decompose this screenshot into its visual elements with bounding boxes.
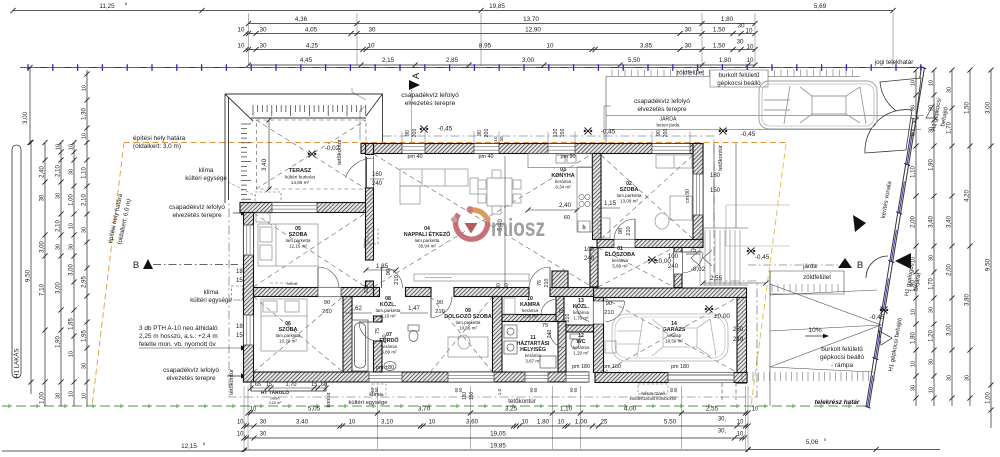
svg-text:120: 120: [553, 129, 559, 138]
svg-text:30: 30: [965, 375, 971, 381]
svg-text:39,94 m²: 39,94 m²: [418, 244, 436, 249]
svg-text:30: 30: [911, 385, 917, 391]
svg-text:lam.parketta: lam.parketta: [415, 238, 440, 243]
svg-text:3,00: 3,00: [947, 324, 953, 336]
svg-text:(oldalkert: 3,0 m): (oldalkert: 3,0 m): [133, 143, 181, 150]
svg-text:kerámia: kerámia: [555, 179, 572, 184]
svg-text:3,40: 3,40: [947, 216, 953, 228]
svg-text:kerámia: kerámia: [381, 344, 398, 349]
svg-text:2,55: 2,55: [710, 275, 723, 282]
svg-text:30: 30: [929, 307, 935, 313]
svg-text:10: 10: [82, 85, 88, 91]
svg-text:TERASZ: TERASZ: [289, 168, 312, 174]
svg-text:elvezetés terepre: elvezetés terepre: [405, 100, 456, 107]
svg-text:30: 30: [56, 393, 62, 399]
svg-text:76: 76: [559, 308, 565, 314]
svg-text:DOLGOZÓ SZOBA: DOLGOZÓ SZOBA: [444, 312, 492, 320]
svg-text:6,89 m²: 6,89 m²: [381, 350, 397, 355]
svg-text:WC: WC: [577, 339, 586, 345]
svg-text:1,90: 1,90: [929, 159, 935, 171]
svg-text:11,25: 11,25: [99, 3, 115, 10]
svg-text:240: 240: [547, 330, 553, 339]
svg-text:15,: 15,: [311, 382, 319, 388]
svg-text:2,40: 2,40: [559, 202, 572, 209]
svg-text:-0,02: -0,02: [691, 266, 706, 273]
svg-text:19,85: 19,85: [490, 443, 506, 450]
svg-text:10: 10: [746, 44, 754, 51]
svg-text:NAPPALI ÉTKEZŐ: NAPPALI ÉTKEZŐ: [404, 230, 451, 238]
svg-text:B: B: [857, 260, 863, 271]
svg-text:1,70: 1,70: [286, 382, 297, 388]
svg-text:1,80: 1,80: [537, 419, 550, 426]
svg-text:18,59 m²: 18,59 m²: [665, 339, 683, 344]
svg-text:2,55: 2,55: [706, 406, 719, 413]
svg-text:lam.parketta: lam.parketta: [276, 333, 301, 338]
svg-text:2,10: 2,10: [56, 165, 62, 177]
svg-text:10: 10: [911, 257, 917, 263]
svg-text:A: A: [411, 72, 422, 79]
svg-text:-0,02: -0,02: [325, 145, 340, 152]
svg-text:76: 76: [537, 280, 543, 286]
svg-text:1,70 m²: 1,70 m²: [573, 316, 589, 321]
svg-text:30: 30: [40, 194, 46, 201]
svg-text:10%: 10%: [808, 327, 822, 334]
svg-text:10: 10: [911, 309, 917, 315]
svg-text:5,89 m²: 5,89 m²: [612, 264, 628, 269]
svg-text:250: 250: [733, 326, 744, 333]
svg-text:150: 150: [560, 129, 566, 138]
svg-text:simílap: simílap: [667, 333, 682, 338]
svg-text:KÖZL.: KÖZL.: [380, 301, 397, 308]
svg-text:tetőkontúr: tetőkontúr: [229, 369, 235, 395]
svg-text:HÁZTARTÁSI: HÁZTARTÁSI: [517, 340, 550, 347]
svg-text:15: 15: [266, 382, 272, 388]
svg-text:lam.parketta: lam.parketta: [456, 320, 481, 325]
svg-text:kontúr: kontúr: [326, 392, 332, 407]
svg-text:30: 30: [499, 136, 504, 142]
svg-text:3,25: 3,25: [505, 406, 518, 413]
svg-text:240: 240: [372, 181, 383, 187]
svg-text:zöldfelület: zöldfelület: [803, 274, 831, 281]
svg-text:-0,45: -0,45: [755, 254, 770, 261]
svg-text:30: 30: [911, 105, 917, 111]
svg-text:90: 90: [405, 130, 411, 136]
svg-text:1,85: 1,85: [69, 318, 75, 330]
svg-text:10: 10: [367, 43, 375, 50]
svg-text:90: 90: [606, 301, 612, 307]
svg-text:cm 90: cm 90: [685, 189, 691, 203]
svg-text:kerámia: kerámia: [612, 258, 629, 263]
svg-text:10,: 10,: [237, 432, 246, 438]
svg-text:klíma: klíma: [199, 167, 214, 174]
svg-text:30: 30: [929, 105, 935, 111]
svg-text:180: 180: [710, 173, 721, 179]
svg-text:kerámia: kerámia: [525, 353, 542, 358]
svg-text:3,87 m²: 3,87 m²: [525, 358, 541, 363]
svg-text:75: 75: [542, 323, 548, 329]
svg-text:elvezetés terepre: elvezetés terepre: [172, 212, 221, 219]
svg-text:klíma: klíma: [369, 392, 383, 398]
svg-text:30: 30: [684, 43, 692, 50]
svg-text:240: 240: [584, 256, 595, 262]
svg-text:4,20: 4,20: [965, 190, 971, 202]
svg-text:1,10: 1,10: [82, 167, 88, 179]
svg-text:8,34 m²: 8,34 m²: [555, 185, 571, 190]
svg-text:3,40: 3,40: [296, 419, 309, 426]
svg-text:tetőkontúr: tetőkontúr: [508, 398, 536, 405]
svg-text:9,50: 9,50: [25, 269, 32, 282]
svg-text:10: 10: [911, 80, 917, 86]
svg-text:30: 30: [260, 432, 267, 438]
svg-text:3,40: 3,40: [929, 216, 935, 228]
svg-text:burkolt felületű: burkolt felületű: [719, 72, 760, 79]
svg-text:75: 75: [690, 248, 697, 254]
svg-text:4,36: 4,36: [295, 16, 308, 23]
svg-text:9,50: 9,50: [985, 258, 992, 271]
svg-text:lam.parketta: lam.parketta: [376, 308, 401, 313]
svg-text:30: 30: [947, 87, 953, 93]
svg-text:kültéri burkolat: kültéri burkolat: [285, 174, 316, 179]
svg-text:zöldfelület: zöldfelület: [676, 70, 704, 77]
svg-text:10: 10: [493, 136, 498, 142]
svg-text:telekrész határ: telekrész határ: [815, 399, 860, 406]
svg-text:±0,00: ±0,00: [714, 313, 730, 320]
svg-text:12,15 m²: 12,15 m²: [289, 244, 307, 249]
svg-text:burkolt felületű: burkolt felületű: [821, 346, 863, 353]
svg-text:30: 30: [929, 127, 935, 133]
svg-text:10: 10: [56, 144, 62, 150]
svg-text:19,05: 19,05: [490, 431, 506, 438]
svg-text:5,50: 5,50: [628, 57, 641, 64]
svg-text:1,80: 1,80: [911, 280, 917, 292]
svg-text:210: 210: [565, 314, 571, 323]
svg-text:h: h: [583, 225, 586, 231]
svg-text:30: 30: [56, 193, 62, 199]
svg-text:1,35 m²: 1,35 m²: [522, 314, 538, 319]
svg-text:3 db PTH A-10 neo áthidaló: 3 db PTH A-10 neo áthidaló: [139, 325, 218, 332]
svg-text:3,60: 3,60: [466, 419, 479, 426]
svg-text:200: 200: [412, 129, 418, 138]
svg-text:10: 10: [82, 133, 88, 139]
svg-text:KONYHA: KONYHA: [551, 173, 574, 179]
svg-text:160: 160: [372, 172, 383, 178]
svg-text:10: 10: [929, 80, 935, 86]
svg-text:90: 90: [656, 130, 662, 136]
svg-text:járda: járda: [802, 263, 817, 270]
svg-text:3,10: 3,10: [381, 419, 394, 426]
svg-text:10: 10: [69, 223, 75, 229]
svg-text:1,50: 1,50: [713, 43, 726, 50]
svg-text:SZOBA: SZOBA: [279, 327, 298, 333]
svg-text:30: 30: [947, 375, 953, 381]
svg-text:1,30: 1,30: [82, 108, 88, 120]
svg-text:30: 30: [69, 244, 75, 250]
svg-text:10: 10: [82, 393, 88, 399]
svg-text:-0,45: -0,45: [870, 314, 885, 321]
svg-text:10,: 10,: [237, 420, 246, 426]
svg-text:kültéri egysége: kültéri egysége: [190, 297, 232, 304]
svg-text:210: 210: [626, 226, 632, 235]
svg-text:1,00: 1,00: [40, 392, 46, 404]
svg-text:10: 10: [745, 28, 753, 35]
svg-text:60: 60: [533, 387, 538, 392]
svg-text:2,15: 2,15: [382, 57, 395, 64]
svg-text:-0,45: -0,45: [601, 129, 616, 136]
svg-text:1,62: 1,62: [350, 306, 362, 312]
svg-text:98: 98: [618, 228, 624, 234]
svg-text:pm 180: pm 180: [671, 364, 689, 370]
svg-text:elvezetés terepre: elvezetés terepre: [637, 106, 686, 113]
svg-text:60: 60: [673, 387, 678, 392]
svg-text:1,70: 1,70: [929, 278, 935, 290]
svg-text:210: 210: [435, 309, 445, 315]
svg-text:kültéri egysége: kültéri egysége: [349, 400, 388, 406]
svg-text:2,00: 2,00: [947, 264, 953, 276]
svg-text:30: 30: [929, 255, 935, 261]
svg-text:10: 10: [752, 407, 759, 413]
svg-text:30: 30: [82, 227, 88, 233]
svg-text:240: 240: [382, 334, 388, 343]
svg-text:3,00: 3,00: [522, 57, 535, 64]
svg-text:2,10: 2,10: [56, 220, 62, 232]
svg-text:klíma: klíma: [287, 281, 297, 286]
svg-text:kerámia: kerámia: [573, 345, 590, 350]
svg-text:10: 10: [69, 351, 75, 357]
svg-text:30: 30: [260, 420, 267, 426]
svg-text:60: 60: [911, 130, 917, 136]
svg-text:12,90: 12,90: [525, 27, 541, 34]
svg-text:10: 10: [250, 407, 257, 413]
svg-text:2,40: 2,40: [40, 166, 46, 178]
svg-text:1,15: 1,15: [604, 200, 617, 207]
svg-text:65: 65: [255, 382, 261, 388]
svg-text:10,86 m²: 10,86 m²: [459, 326, 477, 331]
svg-text:1,0: 1,0: [497, 388, 502, 395]
svg-text:elvezetés terepre: elvezetés terepre: [166, 375, 215, 382]
svg-text:10: 10: [522, 420, 529, 426]
svg-text:kerámia: kerámia: [522, 308, 539, 313]
svg-text:1,10: 1,10: [911, 166, 917, 178]
svg-text:klíma: klíma: [362, 237, 367, 247]
svg-text:4,05: 4,05: [305, 27, 318, 34]
svg-text:KAMRA: KAMRA: [520, 302, 540, 308]
svg-text:-0,45: -0,45: [438, 126, 453, 133]
svg-text:KÖZL.: KÖZL.: [573, 303, 590, 310]
svg-text:2,85: 2,85: [446, 57, 459, 64]
svg-text:1,00: 1,00: [69, 194, 75, 206]
svg-text:1,50: 1,50: [965, 102, 971, 114]
svg-text:3,16 m²: 3,16 m²: [380, 314, 396, 319]
svg-text:90: 90: [386, 269, 392, 275]
svg-text:1,80: 1,80: [719, 57, 732, 64]
svg-text:150: 150: [710, 188, 721, 194]
svg-text:10: 10: [237, 43, 245, 50]
svg-text:210: 210: [544, 279, 550, 288]
svg-text:3,20 m²: 3,20 m²: [269, 401, 283, 405]
svg-text:3,85: 3,85: [640, 43, 653, 50]
svg-text:4,00: 4,00: [624, 406, 637, 413]
svg-text:10: 10: [558, 420, 565, 426]
svg-text:10: 10: [349, 420, 356, 426]
svg-text:2,95: 2,95: [82, 276, 88, 288]
svg-text:19,85: 19,85: [489, 3, 505, 10]
svg-text:3,80: 3,80: [965, 294, 971, 306]
svg-text:10: 10: [69, 144, 75, 150]
svg-text:30: 30: [929, 359, 935, 365]
svg-text:3,00: 3,00: [985, 101, 992, 114]
svg-text:belső: belső: [270, 397, 279, 401]
svg-text:jogi telekhatár: jogi telekhatár: [874, 59, 914, 66]
svg-text:csapadékvíz lefolyó: csapadékvíz lefolyó: [163, 367, 219, 374]
svg-text:10: 10: [429, 420, 436, 426]
svg-text:3,00: 3,00: [22, 111, 29, 124]
svg-text:150: 150: [469, 392, 475, 401]
svg-text:JÁRDA: JÁRDA: [659, 116, 677, 123]
svg-text:30: 30: [684, 27, 692, 34]
svg-text:1,00: 1,00: [575, 419, 588, 426]
svg-text:SZOBA: SZOBA: [289, 232, 308, 238]
svg-text:tetőkontúr: tetőkontúr: [718, 145, 724, 171]
svg-text:30,: 30,: [718, 429, 727, 435]
svg-text:gépkocsi beálló: gépkocsi beálló: [820, 354, 865, 361]
svg-text:2,00: 2,00: [911, 216, 917, 228]
svg-text:30: 30: [259, 27, 267, 34]
svg-text:30: 30: [496, 283, 502, 289]
svg-text:14,85 m²: 14,85 m²: [291, 180, 310, 185]
svg-text:klíma: klíma: [204, 289, 219, 296]
svg-text:30: 30: [69, 169, 75, 175]
svg-text:építési hely határa: építési hely határa: [133, 135, 186, 142]
svg-text:pm ±80: pm ±80: [376, 365, 394, 371]
svg-text:1,20 m²: 1,20 m²: [573, 351, 589, 356]
svg-text:13,09 m²: 13,09 m²: [620, 199, 638, 204]
svg-text:10: 10: [69, 391, 75, 397]
svg-text:felette mon. vb. nyomott öv: felette mon. vb. nyomott öv: [139, 341, 217, 348]
svg-text:pm 40: pm 40: [408, 154, 423, 160]
svg-text:210: 210: [322, 309, 332, 315]
svg-text:csapadékvíz lefolyó: csapadékvíz lefolyó: [634, 98, 690, 105]
svg-text:10: 10: [237, 27, 245, 34]
svg-text:13,70: 13,70: [523, 16, 539, 23]
svg-text:30: 30: [736, 39, 744, 46]
svg-text:1,10: 1,10: [560, 406, 573, 413]
svg-text:10: 10: [929, 387, 935, 393]
svg-text:1,95: 1,95: [82, 330, 88, 342]
svg-text:beton járda: beton járda: [657, 123, 680, 128]
svg-text:10,20 m²: 10,20 m²: [279, 339, 297, 344]
svg-text:60: 60: [573, 387, 578, 392]
svg-text:30: 30: [368, 27, 376, 34]
svg-text:5,06: 5,06: [806, 439, 819, 446]
svg-text:pm 180: pm 180: [603, 364, 621, 370]
svg-text:±0,00: ±0,00: [655, 258, 671, 265]
svg-text:4,25: 4,25: [306, 43, 319, 50]
svg-text:2,25 m hosszú, a.s.: +2,4 m: 2,25 m hosszú, a.s.: +2,4 m: [139, 333, 218, 340]
svg-text:csapadékvíz lefolyó: csapadékvíz lefolyó: [169, 204, 225, 211]
svg-text:210: 210: [604, 310, 614, 316]
svg-text:3,00: 3,00: [69, 264, 75, 276]
svg-text:kondenzációs kombicirkó: kondenzációs kombicirkó: [630, 396, 677, 401]
svg-text:- rámpa: - rámpa: [831, 362, 853, 369]
svg-text:lam.parketta: lam.parketta: [617, 193, 642, 198]
svg-text:60: 60: [321, 382, 327, 388]
svg-text:75: 75: [375, 328, 381, 334]
svg-text:5,05: 5,05: [308, 406, 321, 413]
svg-text:25: 25: [601, 420, 608, 426]
svg-text:pm 40: pm 40: [479, 154, 494, 160]
svg-text:2,10: 2,10: [82, 194, 88, 206]
svg-text:30: 30: [56, 244, 62, 250]
svg-text:100: 100: [584, 247, 595, 253]
svg-text:3,70: 3,70: [418, 406, 431, 413]
svg-text:200: 200: [484, 129, 490, 138]
svg-text:csapadékvíz lefolyó: csapadékvíz lefolyó: [401, 92, 459, 99]
svg-text:1,20: 1,20: [929, 330, 935, 342]
svg-text:kültéri egysége: kültéri egysége: [185, 175, 227, 182]
svg-text:10: 10: [737, 420, 744, 426]
svg-text:B: B: [133, 260, 139, 271]
svg-text:pm 180: pm 180: [572, 364, 590, 370]
svg-text:7,10: 7,10: [39, 283, 46, 296]
svg-text:10: 10: [911, 361, 917, 367]
svg-text:60: 60: [564, 215, 570, 221]
svg-text:10: 10: [546, 43, 554, 50]
svg-text:5,50: 5,50: [664, 419, 677, 426]
svg-text:1,80: 1,80: [911, 332, 917, 344]
svg-text:30,: 30,: [718, 417, 727, 423]
svg-text:1,00: 1,00: [986, 392, 992, 404]
svg-text:miosz: miosz: [491, 214, 545, 242]
svg-text:ELŐSZOBA: ELŐSZOBA: [605, 251, 635, 258]
svg-text:210: 210: [364, 285, 370, 294]
svg-text:kerámia: kerámia: [573, 310, 590, 315]
svg-text:4,45: 4,45: [300, 57, 313, 64]
svg-text:gépkocsi beálló: gépkocsi beálló: [717, 80, 761, 87]
svg-text:240: 240: [733, 336, 744, 343]
svg-text:3,40: 3,40: [261, 158, 268, 171]
svg-text:200: 200: [663, 129, 669, 138]
svg-text:1,90: 1,90: [56, 336, 62, 348]
svg-text:30: 30: [259, 43, 267, 50]
svg-text:lam.parketta: lam.parketta: [286, 238, 311, 243]
svg-text:210: 210: [394, 275, 400, 285]
svg-text:3,00: 3,00: [56, 282, 62, 294]
svg-text:1,70: 1,70: [947, 122, 953, 134]
svg-text:pm 90: pm 90: [561, 154, 576, 160]
svg-text:1,47: 1,47: [408, 306, 420, 312]
svg-text:10: 10: [746, 57, 754, 64]
svg-text:90: 90: [324, 300, 330, 306]
svg-text:3,00: 3,00: [40, 241, 46, 253]
svg-text:5,69: 5,69: [814, 3, 827, 10]
svg-text:1,80: 1,80: [721, 16, 734, 23]
svg-text:180: 180: [462, 392, 468, 401]
svg-text:H1 LAKÁS: H1 LAKÁS: [14, 348, 21, 378]
svg-text:30: 30: [737, 23, 745, 30]
svg-text:SZOBA: SZOBA: [620, 187, 639, 193]
svg-text:GARÁZS: GARÁZS: [663, 326, 686, 333]
svg-text:60: 60: [458, 387, 463, 392]
svg-text:30: 30: [82, 363, 88, 369]
svg-text:1,50: 1,50: [713, 27, 726, 34]
svg-text:HELYISÉG: HELYISÉG: [520, 345, 546, 353]
svg-text:-0,45: -0,45: [741, 131, 756, 138]
svg-text:90: 90: [437, 300, 443, 306]
svg-text:12,15: 12,15: [181, 443, 197, 450]
svg-text:10: 10: [737, 432, 744, 438]
svg-text:90: 90: [477, 130, 483, 136]
